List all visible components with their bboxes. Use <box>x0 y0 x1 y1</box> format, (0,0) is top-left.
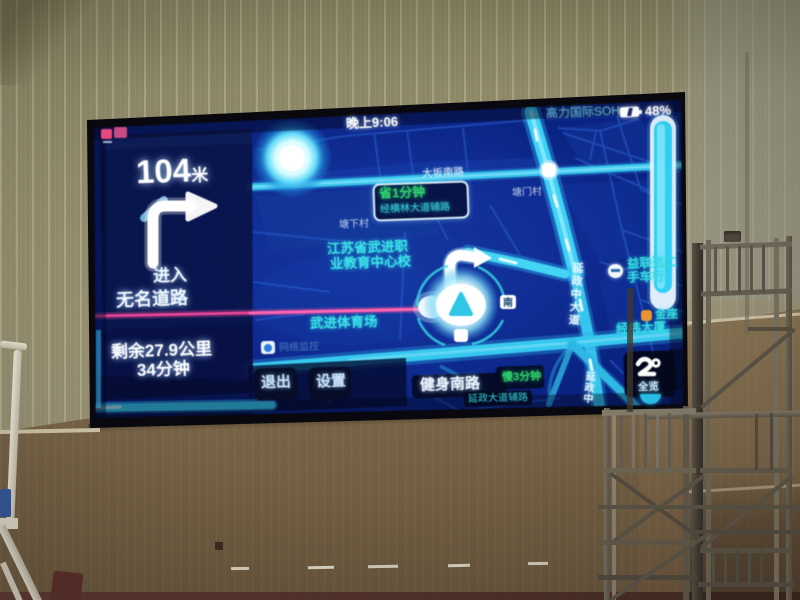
svg-text:南: 南 <box>503 296 513 309</box>
